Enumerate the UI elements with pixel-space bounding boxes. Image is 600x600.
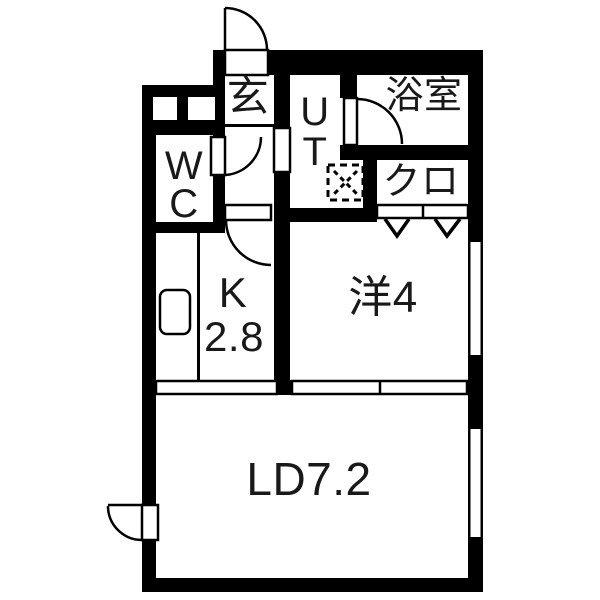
room-label-ut-t: T [303, 132, 328, 172]
ut-door-icon [274, 128, 290, 172]
closet-bifold-door-icon [377, 205, 468, 236]
living-dining-exterior-door-icon [108, 505, 158, 540]
kitchen-sink-icon [160, 290, 190, 334]
room-label-kitchen: K [219, 272, 248, 314]
room-label-bathroom: 浴室 [385, 77, 462, 115]
room-label-wc-w: W [165, 146, 203, 186]
room-label-wc-c: C [169, 184, 198, 224]
window-western-room [468, 242, 483, 355]
room-label-closet: クロ [382, 163, 459, 201]
kitchen-counter [160, 233, 200, 381]
floor-plan: 玄 W C U T 浴室 クロ K 2.8 洋4 LD7.2 [0, 0, 600, 600]
kitchen-door-icon [225, 205, 271, 265]
genkan-step-line [225, 124, 275, 127]
room-label-western-room: 洋4 [348, 276, 417, 320]
window-living-dining [468, 429, 483, 537]
wc-door-icon [211, 137, 261, 175]
room-label-ut-u: U [300, 92, 329, 132]
room-label-kitchen-size: 2.8 [204, 316, 264, 358]
room-label-genkan: 玄 [227, 76, 270, 118]
western-room-ld-opening [292, 381, 467, 394]
entrance-door-icon [225, 8, 268, 75]
kitchen-ld-opening [156, 381, 277, 394]
washing-machine-space-icon [328, 165, 363, 200]
room-label-living-dining: LD7.2 [246, 456, 371, 502]
